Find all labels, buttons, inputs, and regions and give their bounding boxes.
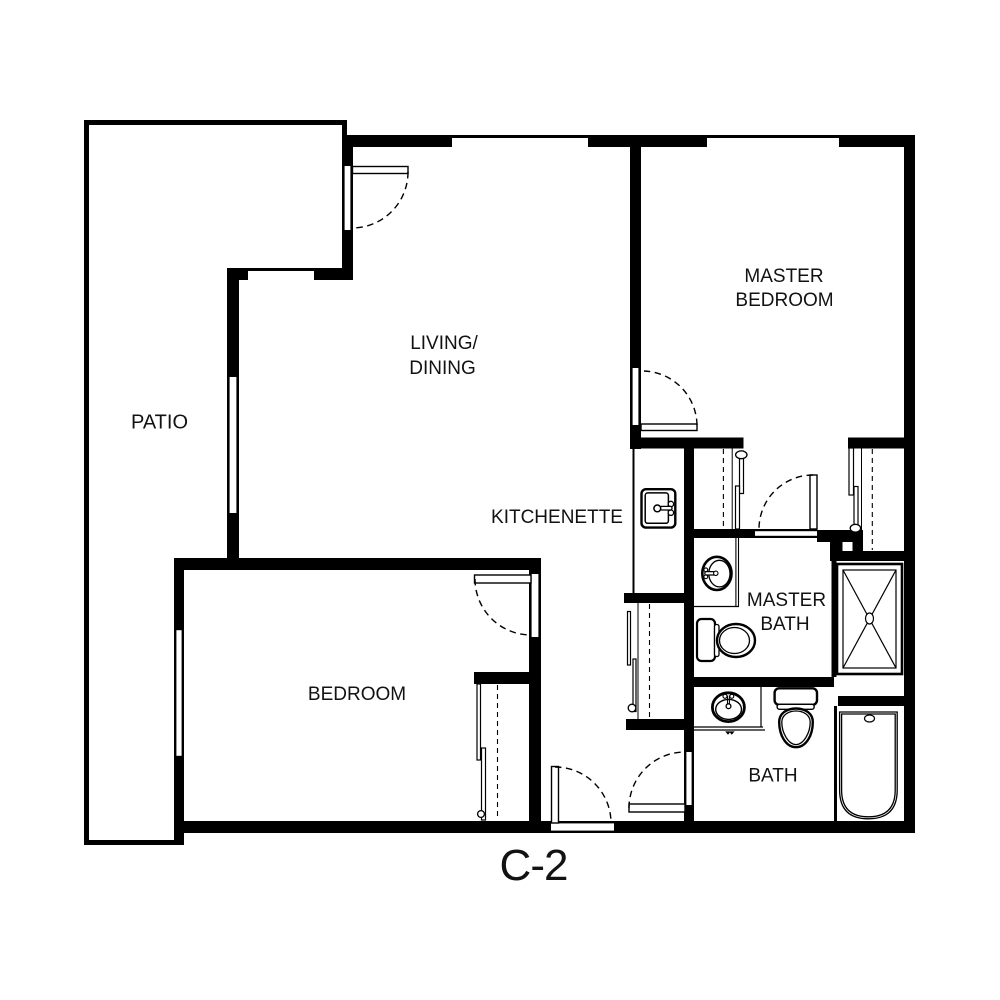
- svg-text:DINING: DINING: [409, 358, 476, 379]
- svg-text:BATH: BATH: [760, 614, 809, 635]
- svg-text:KITCHENETTE: KITCHENETTE: [491, 507, 623, 528]
- svg-text:LIVING/: LIVING/: [410, 333, 478, 354]
- svg-text:PATIO: PATIO: [131, 412, 188, 434]
- svg-text:BEDROOM: BEDROOM: [735, 290, 833, 311]
- svg-text:BATH: BATH: [748, 766, 797, 787]
- svg-text:MASTER: MASTER: [744, 266, 823, 287]
- svg-text:MASTER: MASTER: [747, 590, 826, 611]
- svg-text:BEDROOM: BEDROOM: [308, 684, 406, 705]
- svg-text:C-2: C-2: [500, 841, 568, 890]
